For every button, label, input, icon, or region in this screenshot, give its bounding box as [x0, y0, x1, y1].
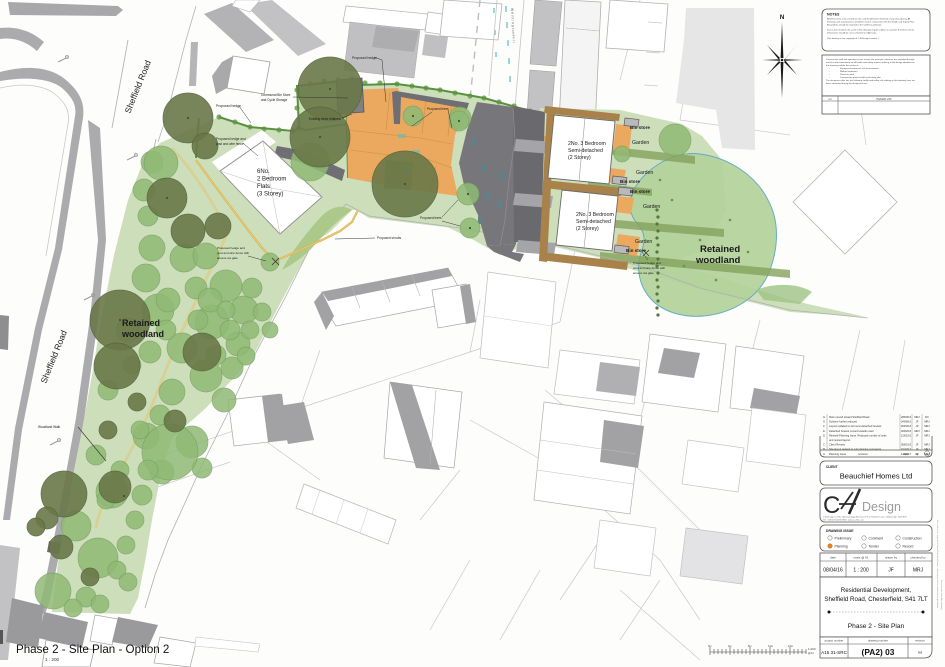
svg-text:H: H: [823, 415, 825, 419]
svg-text:Do not scale from this drawing: Do not scale from this drawing: [940, 580, 943, 610]
svg-text:post and wire fence: post and wire fence: [216, 142, 244, 146]
svg-text:Construction phase health and: Construction phase health and safety pla…: [840, 76, 882, 79]
svg-text:MRJ: MRJ: [914, 415, 920, 419]
svg-text:H: H: [918, 650, 921, 655]
svg-text:MRJ: MRJ: [924, 429, 930, 433]
svg-text:Proposed hedge and: Proposed hedge and: [216, 137, 246, 141]
svg-text:04/08/16: 04/08/16: [901, 420, 912, 424]
svg-text:(3 Storey): (3 Storey): [257, 192, 283, 198]
svg-text:MRJ: MRJ: [924, 424, 930, 428]
svg-text:Proposed trees: Proposed trees: [427, 107, 449, 111]
svg-text:The designers roles has the fo: The designers roles has the following he…: [826, 79, 915, 82]
svg-text:02/02/16: 02/02/16: [901, 429, 912, 433]
svg-text:08/04/16: 08/04/16: [823, 568, 843, 574]
svg-text:Semi-detached: Semi-detached: [568, 148, 603, 154]
svg-text:Permit to work: Permit to work: [840, 73, 855, 76]
svg-text:NOTES: NOTES: [827, 13, 840, 17]
svg-text:Bin store: Bin store: [630, 189, 650, 194]
svg-text:Detached houses moved towards: Detached houses moved towards road: [829, 429, 874, 433]
svg-text:revision: revision: [858, 452, 868, 456]
svg-text:Garden: Garden: [643, 204, 660, 210]
svg-text:date: date: [830, 556, 836, 560]
svg-text:Semi-detached: Semi-detached: [576, 219, 611, 225]
svg-text:woodland: woodland: [695, 255, 741, 266]
svg-text:Flats: Flats: [257, 184, 270, 190]
svg-text:RC: RC: [925, 415, 929, 419]
svg-text:For reference - Layout of Semi: For reference - Layout of Semi Detached …: [936, 520, 939, 609]
svg-text:C A Design Ltd No 7 Archaeol: C A Design Ltd No 7 Archaeology Business…: [823, 516, 907, 519]
svg-text:MRJ: MRJ: [924, 433, 930, 437]
svg-text:Client Review: Client Review: [829, 443, 845, 447]
svg-text:Communal Bin Store: Communal Bin Store: [261, 93, 291, 97]
svg-text:Proposed trees: Proposed trees: [420, 216, 442, 220]
svg-text:drawing number: drawing number: [868, 639, 888, 643]
svg-text:Proposed hedge: Proposed hedge: [216, 104, 241, 108]
svg-text:Designers/contractors risk ass: Designers/contractors risk assessments: [840, 67, 880, 70]
svg-text:and Cycle Storage: and Cycle Storage: [261, 98, 287, 102]
svg-text:MRJ: MRJ: [914, 429, 920, 433]
svg-text:MRJ: MRJ: [913, 568, 924, 574]
svg-text:Retained: Retained: [122, 318, 160, 328]
svg-text:Existing trees retained: Existing trees retained: [309, 117, 341, 121]
svg-text:post and wire fence with: post and wire fence with: [217, 251, 250, 255]
svg-text:JF: JF: [916, 443, 919, 447]
svg-text:Comment: Comment: [869, 537, 884, 541]
svg-text:Retained: Retained: [700, 244, 740, 255]
svg-text:this drawing include the revie: this drawing include the review of:: [826, 64, 859, 67]
svg-text:Residential Development,: Residential Development,: [841, 587, 912, 594]
svg-text:(2 Storey): (2 Storey): [576, 226, 599, 232]
svg-text:Phase 2 - Site Plan - Option 2: Phase 2 - Site Plan - Option 2: [16, 643, 169, 656]
svg-text:06/03/16: 06/03/16: [901, 424, 912, 428]
svg-text:Site layout revised to suit pl: Site layout revised to suit planning com…: [829, 447, 882, 451]
svg-text:2No. 3 Bedroom: 2No. 3 Bedroom: [576, 212, 614, 218]
svg-text:JF: JF: [916, 447, 919, 451]
svg-text:Garden: Garden: [632, 140, 649, 146]
svg-text:woodland: woodland: [121, 329, 164, 339]
svg-text:Tender: Tender: [869, 545, 880, 549]
svg-text:Proposed hedge: Proposed hedge: [352, 56, 377, 60]
svg-text:C: C: [823, 492, 840, 519]
svg-text:Bin store: Bin store: [630, 125, 650, 130]
svg-text:ref: ref: [829, 98, 832, 101]
svg-text:(PA2) 03: (PA2) 03: [862, 647, 895, 657]
svg-text:1 : 200: 1 : 200: [853, 568, 869, 574]
svg-text:JF: JF: [888, 568, 894, 574]
svg-text:MRJ: MRJ: [924, 447, 930, 451]
svg-text:drawings and specifications sh: drawings and specifications should be re…: [827, 21, 915, 24]
svg-text:project number: project number: [825, 639, 844, 643]
svg-text:Woodland Walk: Woodland Walk: [38, 425, 61, 429]
svg-text:Tel : 01432 652235 Web: w: Tel : 01432 652235 Web: www.ca-hhcs.uk: [823, 520, 865, 522]
svg-text:D: D: [823, 433, 825, 437]
svg-text:Design: Design: [862, 500, 901, 514]
svg-text:access via gate: access via gate: [633, 271, 654, 275]
svg-text:0m: 0m: [708, 644, 712, 648]
svg-text:Garden: Garden: [635, 239, 652, 245]
svg-text:Planning: Planning: [835, 545, 848, 549]
svg-text:Sheffield Road, Chesterfield,: Sheffield Road, Chesterfield, S41 7LT: [824, 596, 928, 603]
svg-text:JF: JF: [916, 424, 919, 428]
svg-text:Proposed hedge and: Proposed hedge and: [633, 261, 661, 265]
svg-text:Bin store: Bin store: [620, 179, 640, 184]
svg-text:Proposed hedge and: Proposed hedge and: [217, 246, 245, 250]
svg-text:A: A: [823, 452, 825, 456]
svg-text:been eliminated during the des: been eliminated during the design proces…: [826, 82, 868, 85]
svg-text:N: N: [780, 14, 785, 21]
svg-text:Planning Issue: Planning Issue: [829, 452, 847, 456]
svg-text:28/09/16: 28/09/16: [901, 415, 912, 419]
svg-text:4m: 4m: [728, 644, 732, 648]
svg-text:and revised layout: and revised layout: [829, 438, 850, 442]
svg-text:05/01/16: 05/01/16: [901, 443, 912, 447]
svg-text:C: C: [823, 443, 825, 447]
svg-text:Proposed shrubs: Proposed shrubs: [377, 236, 402, 240]
svg-text:All symbols should be reported: All symbols should be reported to the CD…: [827, 24, 882, 27]
svg-text:Beauchief Homes Ltd: Beauchief Homes Ltd: [840, 472, 913, 481]
svg-text:12m: 12m: [768, 644, 773, 648]
svg-text:Garden: Garden: [636, 170, 653, 176]
svg-text:A15 31-SRC: A15 31-SRC: [821, 650, 847, 655]
svg-text:This drawing is the copyright: This drawing is the copyright of C-A Des…: [827, 37, 880, 40]
svg-text:1 : 200: 1 : 200: [45, 657, 59, 662]
svg-text:(2 Storey): (2 Storey): [568, 155, 591, 161]
svg-text:Revised Planning Issue. Reduce: Revised Planning Issue. Reduced number o…: [829, 433, 887, 437]
svg-text:1:200: 1:200: [808, 647, 816, 651]
svg-text:Construction: Construction: [903, 537, 922, 541]
svg-text:Layout updated to suit semi-de: Layout updated to suit semi-detached hou…: [829, 424, 882, 428]
svg-text:CLIENT: CLIENT: [826, 465, 838, 469]
svg-text:date: date: [903, 452, 909, 456]
svg-text:All dimensions to be verified: All dimensions to be verified on site, a…: [827, 18, 911, 21]
svg-text:B: B: [823, 447, 825, 451]
svg-text:HAZARD LIST: HAZARD LIST: [876, 98, 892, 101]
svg-text:Due to print medium the scale: Due to print medium the scale of this dr…: [827, 29, 914, 32]
svg-text:8m: 8m: [748, 644, 752, 648]
svg-text:15/12/17: 15/12/17: [901, 447, 912, 451]
svg-text:E: E: [823, 429, 825, 433]
svg-text:MRJ: MRJ: [924, 443, 930, 447]
svg-text:and accurate information on al: and accurate information on all health a…: [826, 61, 915, 64]
svg-text:revision: revision: [915, 639, 925, 643]
svg-text:Construction staff and operati: Construction staff and operatives must e…: [826, 58, 915, 61]
svg-text:2No. 3 Bedroom: 2No. 3 Bedroom: [568, 141, 606, 147]
svg-text:scale @ A1: scale @ A1: [853, 556, 869, 560]
svg-text:Phase 2 - Site Plan: Phase 2 - Site Plan: [848, 623, 905, 630]
svg-text:Record: Record: [903, 545, 914, 549]
svg-text:Scheme further reduced: Scheme further reduced: [829, 420, 857, 424]
svg-text:12/01/16: 12/01/16: [901, 433, 912, 437]
svg-text:6No.: 6No.: [257, 169, 270, 175]
svg-text:@A1: @A1: [808, 651, 814, 655]
svg-text:DRAWING ISSUE: DRAWING ISSUE: [826, 529, 854, 533]
svg-text:checked by: checked by: [910, 556, 926, 560]
svg-text:G: G: [823, 420, 825, 424]
svg-text:JF: JF: [916, 420, 919, 424]
svg-text:Flats moved toward Sheffield R: Flats moved toward Sheffield Road: [829, 415, 870, 419]
svg-text:dimensions should be cross che: dimensions should be cross checked on CA…: [827, 32, 877, 35]
svg-text:Bin store: Bin store: [626, 248, 646, 253]
svg-text:access via gate: access via gate: [217, 256, 238, 260]
svg-text:Preliminary: Preliminary: [835, 537, 852, 541]
svg-text:drawn by: drawn by: [885, 556, 898, 560]
svg-text:post and wire fence with: post and wire fence with: [633, 266, 666, 270]
svg-text:16m: 16m: [788, 644, 793, 648]
svg-text:Method statement: Method statement: [840, 70, 858, 73]
svg-text:MRJ: MRJ: [924, 420, 930, 424]
svg-text:2 Bedroom: 2 Bedroom: [257, 177, 286, 183]
svg-text:JF: JF: [916, 433, 919, 437]
